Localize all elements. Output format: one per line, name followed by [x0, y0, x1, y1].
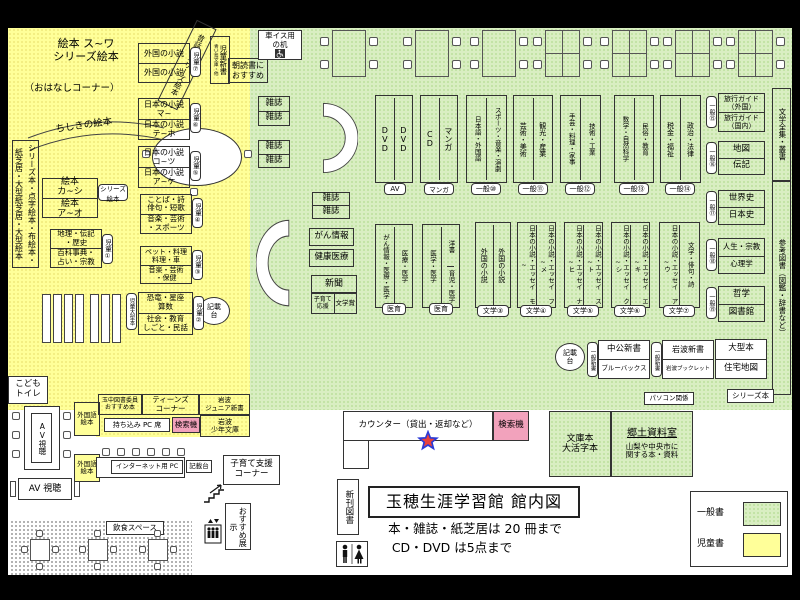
- label-series-books: シリーズ本: [727, 389, 774, 403]
- shelf-medical-2: 医学・医学 洋書 育児・医学: [422, 224, 460, 308]
- shelf-col: 民俗・教育: [634, 98, 654, 180]
- chair: [154, 530, 161, 537]
- tag-jido-ogata: 児童大型本: [126, 293, 137, 330]
- shelf-travel-guides: 旅行ガイド （外国） 旅行ガイド （国内）: [718, 93, 765, 132]
- shelf-japanese-novels-ko: 日本の小説 コ~ツ 日本の小説 ア~ケ: [138, 146, 190, 188]
- shelf-cell: 人生・宗教: [719, 239, 764, 256]
- shelf-general-11: 芸術・美術 観光・産業: [513, 95, 553, 183]
- shelf-children-shinsho: 青い鳥文庫・他 児童新書: [210, 36, 230, 84]
- bookshelf-bar: [53, 294, 62, 343]
- chair: [470, 60, 479, 69]
- legend-row-children: 児童書: [697, 533, 781, 557]
- tag-series-ehon: シリーズ 絵本: [98, 184, 128, 201]
- chair: [663, 60, 672, 69]
- shelf-medical-1: がん情報・医療・医学 医療・医学: [375, 224, 413, 308]
- shelf-cell: 文学賞: [334, 294, 357, 313]
- shelf-col: マンガ: [439, 98, 458, 180]
- search-terminal-teens[interactable]: 検索機: [172, 417, 200, 433]
- chair: [177, 448, 185, 456]
- shelf-japanese-novels-ma: 日本の小説 マ~ 日本の小説 テ~ホ: [138, 98, 190, 140]
- shelf-iwanami-shinsho: 岩波新書 岩波ブックレット: [662, 340, 714, 379]
- chair: [52, 546, 59, 553]
- shelf-col: 技術・工業: [580, 98, 600, 180]
- shelf-cell: 育児・医学: [447, 266, 454, 306]
- chair: [403, 37, 412, 46]
- curved-shelf-left: [256, 218, 294, 308]
- shelf-general-10: 日本語・外国語 スポーツ・音楽・演劇: [466, 95, 507, 183]
- tag-literature-5: 文学⑤: [567, 305, 599, 317]
- chair: [21, 546, 28, 553]
- shelf-col: 数学・自然科学: [615, 98, 634, 180]
- shelf-col: 税金・福祉: [661, 98, 680, 180]
- shelf-iwanami-junior: 岩波 ジュニア新書: [199, 394, 250, 415]
- chair: [36, 530, 43, 537]
- cafe-table: [148, 539, 168, 561]
- legend-children-label: 児童書: [697, 539, 724, 549]
- shelf-col: 手芸・料理・家事: [561, 98, 580, 180]
- label-picture-books-su-wa: 絵本 ス~ワ シリーズ絵本: [30, 32, 142, 70]
- shelf-cell: 旅行ガイド （外国）: [719, 94, 764, 112]
- wheelchair-icon: [275, 49, 285, 58]
- writing-stand-general: 記載 台: [555, 343, 585, 371]
- chair: [110, 546, 117, 553]
- shelf-general-12: 手芸・料理・家事 技術・工業: [560, 95, 601, 183]
- shelf-general-13: 数学・自然科学 民俗・教育: [614, 95, 654, 183]
- shelf-cell: 旅行ガイド （国内）: [719, 112, 764, 131]
- study-table: [612, 30, 647, 77]
- shelf-cell: 地図: [719, 142, 764, 158]
- tag-general-14: 一般⑭: [665, 183, 695, 195]
- map-title: 玉穂生涯学習館 館内図: [368, 486, 580, 518]
- shelf-cell: 図書館: [719, 304, 764, 322]
- tag-general-19: 一般⑲: [706, 287, 717, 319]
- shelf-cell: 日本の小説 コ~ツ: [139, 147, 189, 167]
- writing-stand-south: 記載台: [186, 460, 212, 473]
- chair: [63, 412, 71, 420]
- tag-manga: マンガ: [424, 183, 454, 195]
- tag-literature-3: 文学③: [477, 305, 509, 317]
- shelf-cell: 日本の小説 マ~: [139, 99, 189, 119]
- shelf-words-poetry-music: ことば・詩 俳句・短歌 音楽・芸術 ・スポーツ: [140, 194, 192, 234]
- tag-jido-1: 児童①: [102, 234, 113, 264]
- chair: [139, 546, 146, 553]
- chair: [94, 563, 101, 570]
- chair: [12, 431, 20, 439]
- shelf-cell: ペット・料理 料理・車: [141, 247, 191, 265]
- chair: [600, 37, 609, 46]
- bookshelf-bar: [64, 294, 73, 343]
- shelf-cell: 雑誌: [313, 193, 349, 205]
- tag-general-18: 一般⑱: [706, 239, 717, 271]
- shelf-cell: 日本の小説 ア~ケ: [139, 167, 189, 188]
- shelf-philosophy-library: 哲学 図書館: [718, 286, 765, 322]
- tag-literature-7: 文学⑦: [663, 305, 695, 317]
- tag-general-17: 一般⑰: [706, 191, 717, 223]
- shelf-cell: 岩波ブックレット: [663, 359, 713, 378]
- shelf-col: CD: [421, 98, 439, 180]
- shelf-col: 日本の小説・エッセイ ナ~ヒ: [565, 225, 583, 305]
- shelf-col: 日本の小説・エッセイ ス~ト: [583, 225, 602, 305]
- study-table: [332, 30, 366, 77]
- tag-literature-6: 文学⑥: [614, 305, 646, 317]
- library-floor-map: 絵本 ス~ワ シリーズ絵本 （おはなしコーナー） 昔話・シリーズ絵本 ちしきの絵…: [0, 0, 800, 600]
- shelf-col: 日本の小説・エッセイ ア~ウ: [660, 225, 679, 305]
- loan-rule-av: CD・DVD は5点まで: [352, 540, 552, 557]
- shelf-general-14: 税金・福祉 政治・法律: [660, 95, 701, 183]
- shelf-cell: 中公新書: [599, 341, 649, 359]
- shelf-geography-encyclopedia: 地理・伝記 ・歴史 百科事典・ 占い・宗教: [50, 229, 102, 268]
- shelf-foreign-novels-kids: 外国の小説 外国の小説: [138, 43, 190, 83]
- chair: [776, 37, 785, 46]
- chair: [12, 412, 20, 420]
- shelf-new-arrivals: 新刊図書: [337, 479, 359, 535]
- shelf-picture-books-ka-a: 絵本 カ~シ 絵本 ア~オ: [42, 178, 98, 218]
- tag-jido-4: 児童④: [192, 198, 203, 228]
- chair: [713, 37, 722, 46]
- shelf-chuko-bluebacks: 中公新書 ブルーバックス: [598, 340, 650, 379]
- shelf-literature-6: 日本の小説・エッセイ ク~シ 日本の小説・エッセイ エ~キ: [611, 222, 650, 308]
- study-table: [675, 30, 710, 77]
- bookshelf-bar: [75, 294, 84, 343]
- shelf-cancer-info: がん情報: [309, 228, 354, 246]
- shelf-literature-5: 日本の小説・エッセイ ナ~ヒ 日本の小説・エッセイ ス~ト: [564, 222, 603, 308]
- shelf-literature-3: 外国の小説 外国の小説: [475, 222, 511, 308]
- chair: [533, 37, 542, 46]
- shelf-series-braille-cloth-kamishibai: シリーズ本・点字絵本・布絵本・紙芝居・大型紙芝居・大型絵本: [12, 140, 39, 268]
- shelf-col: 芸術・美術: [514, 98, 533, 180]
- chair: [36, 563, 43, 570]
- shelf-cell: 雑誌: [313, 205, 349, 218]
- legend-children-swatch: [743, 533, 781, 557]
- chair: [79, 546, 86, 553]
- tag-jido-3: 児童③: [192, 250, 203, 280]
- chair: [369, 60, 378, 69]
- tag-general-15: 一般⑮: [706, 96, 717, 128]
- bookshelf-bar: [42, 294, 51, 343]
- label-jido-shinsho: 児童新書: [218, 45, 227, 75]
- shelf-cell: 雑誌: [259, 141, 289, 154]
- shelf-col: 日本語・外国語: [467, 98, 486, 180]
- shelf-cell: 音楽・芸術 ・保健: [141, 265, 191, 284]
- recommended-display: おすすめ展示: [225, 503, 251, 550]
- shelf-literature-7: 日本の小説・エッセイ ア~ウ 文学・俳句・詩: [659, 222, 700, 308]
- shelf-cell: 外国の小説: [139, 63, 189, 83]
- loan-rule-books: 本・雑誌・紙芝居は 20 冊まで: [360, 521, 590, 538]
- chair: [244, 150, 252, 158]
- shelf-cell: 日本史: [719, 207, 764, 224]
- chair: [533, 60, 542, 69]
- chair: [63, 431, 71, 439]
- chair: [600, 60, 609, 69]
- shelf-magazines-1: 雑誌雑誌: [258, 96, 290, 126]
- tag-general-13: 一般⑬: [619, 183, 649, 195]
- shelf-col: 日本の小説・エッセイ エ~キ: [630, 225, 649, 305]
- shelf-maps-biography: 地図 伝記: [718, 141, 765, 175]
- shelf-col: DVD: [376, 98, 394, 180]
- bookshelf-bar: [90, 294, 99, 343]
- shelf-col: DVD: [394, 98, 413, 180]
- children-toilet: こども トイレ: [8, 376, 48, 404]
- chair-bar: [74, 481, 80, 497]
- shelf-health-medical: 健康医療: [309, 249, 354, 267]
- study-table: [482, 30, 516, 77]
- shelf-magazines-2: 雑誌雑誌: [258, 140, 290, 168]
- cafe-table: [30, 539, 50, 561]
- shelf-col: 日本の小説・エッセイ モ~: [518, 225, 536, 305]
- chair-bar: [10, 481, 16, 497]
- shelf-cell: 世界史: [719, 191, 764, 207]
- av-viewing-booth: AV 視聴: [18, 478, 72, 500]
- shelf-cell: 日本の小説 テ~ホ: [139, 119, 189, 140]
- shelf-newspapers: 新聞: [311, 275, 357, 293]
- shelf-literature-4: 日本の小説・エッセイ モ~ 日本の小説・エッセイ フ~メ: [517, 222, 556, 308]
- label-computer-related: パソコン関係: [644, 392, 694, 405]
- label-story-corner: （おはなしコーナー）: [14, 82, 130, 96]
- chair: [519, 37, 528, 46]
- chair: [369, 37, 378, 46]
- bookshelf-bar: [112, 294, 121, 343]
- tag-medical-1: 医育: [382, 303, 406, 315]
- legend-row-general: 一般書: [697, 502, 781, 526]
- chair: [94, 530, 101, 537]
- shelf-cell: 恐竜・星座 算数: [139, 293, 192, 313]
- tag-general-12: 一般⑫: [565, 183, 595, 195]
- shelf-cell: 雑誌: [259, 111, 289, 126]
- tag-general-10: 一般⑩: [471, 183, 501, 195]
- shelf-cell: 大型本: [716, 340, 766, 359]
- tag-jido-2: 児童②: [193, 296, 204, 330]
- local-materials-title: 郷土資料室: [627, 428, 677, 440]
- shelf-parenting-literature: 子育て 応援 文学賞: [311, 293, 357, 314]
- wheelchair-desk-label: 車イス用 の机: [265, 32, 295, 49]
- counter-leg: [343, 440, 369, 469]
- shelf-bunko-large-print: 文庫本 大活字本: [549, 411, 611, 477]
- chair: [102, 448, 110, 456]
- shelf-col: 医学・医学: [423, 227, 441, 305]
- chair: [63, 450, 71, 458]
- shelf-pets-cooking-health: ペット・料理 料理・車 音楽・芸術 ・保健: [140, 246, 192, 284]
- shelf-cell: 子育て 応援: [312, 294, 334, 313]
- shelf-col: 文学・俳句・詩: [679, 225, 699, 305]
- shelf-reference-books: 参考図書（図鑑・辞書など）: [772, 181, 791, 395]
- tag-jido-7: 児童⑦: [190, 47, 201, 77]
- shelf-cell: 雑誌: [259, 154, 289, 168]
- chair: [12, 450, 20, 458]
- cafe-table: [88, 539, 108, 561]
- shelf-cell: ことば・詩 俳句・短歌: [141, 195, 191, 214]
- chair: [583, 60, 592, 69]
- chair: [162, 448, 170, 456]
- chair: [663, 37, 672, 46]
- curved-shelf-right: [318, 98, 358, 178]
- shelf-cell: 地理・伝記 ・歴史: [51, 230, 101, 248]
- elevator-icon: [204, 518, 222, 544]
- you-are-here-star-icon: [417, 430, 439, 452]
- chair: [776, 60, 785, 69]
- chair: [117, 448, 125, 456]
- chair: [713, 60, 722, 69]
- shelf-cell: ブルーバックス: [599, 359, 649, 378]
- shelf-col: 医療・医学: [394, 227, 413, 305]
- shelf-col: スポーツ・音楽・演劇: [486, 98, 506, 180]
- chair: [132, 448, 140, 456]
- chair: [170, 546, 177, 553]
- av-viewing-table-label: AV視聴: [31, 413, 52, 463]
- chair: [147, 448, 155, 456]
- parenting-support-corner: 子育て支援 コーナー: [223, 455, 280, 485]
- tag-general-shinsho-2: 一般新書: [651, 342, 662, 377]
- map-legend: 一般書 児童書: [690, 491, 788, 567]
- shelf-col: 観光・産業: [533, 98, 553, 180]
- chair: [726, 37, 735, 46]
- tag-medical-2: 医育: [429, 303, 453, 315]
- shelf-morning-reading-recommend: 朝読書に おすすめ: [228, 58, 268, 83]
- shelf-cell: 絵本 カ~シ: [43, 177, 97, 198]
- shelf-cell: 住宅地図: [716, 359, 766, 379]
- shelf-cell: 音楽・芸術 ・スポーツ: [141, 214, 191, 234]
- chair: [650, 60, 659, 69]
- shelf-committee-recommended: 玉中図書委員 おすすめ本: [98, 394, 142, 415]
- chair: [320, 37, 329, 46]
- shelf-history: 世界史 日本史: [718, 190, 765, 225]
- stairs-icon: [202, 482, 226, 504]
- chair: [470, 37, 479, 46]
- local-materials-room: 郷土資料室 山梨や中央市に 関する本・資料: [611, 411, 693, 477]
- local-materials-description: 山梨や中央市に 関する本・資料: [626, 443, 679, 460]
- bookshelf-bar: [101, 294, 110, 343]
- shelf-dinosaurs-society: 恐竜・星座 算数 社会・教育 しごと・民話: [138, 292, 193, 335]
- shelf-cd-manga: CD マンガ: [420, 95, 458, 183]
- shelf-av-dvd: DVD DVD: [375, 95, 413, 183]
- shelf-col: がん情報・医療・医学: [376, 227, 394, 305]
- shelf-col-split: 洋書 育児・医学: [441, 227, 460, 305]
- tag-general-shinsho-1: 一般新書: [587, 342, 598, 377]
- shelf-cell: 岩波新書: [663, 341, 713, 359]
- chair: [519, 60, 528, 69]
- teens-corner-label: ティーンズ コーナー: [142, 394, 199, 415]
- shelf-iwanami-shonen-bunko: 岩波 少年文庫: [200, 415, 250, 437]
- wheelchair-desk: 車イス用 の机: [258, 30, 302, 60]
- shelf-religion-psychology: 人生・宗教 心理学: [718, 238, 765, 274]
- tag-jido-5: 児童⑤: [190, 151, 201, 181]
- tag-literature-4: 文学④: [520, 305, 552, 317]
- study-table: [545, 30, 580, 77]
- shelf-cell: 社会・教育 しごと・民話: [139, 313, 192, 334]
- shelf-cell: 外国の小説: [139, 44, 189, 63]
- shelf-col: 日本の小説・エッセイ フ~メ: [536, 225, 555, 305]
- byo-pc-seat[interactable]: 持ち込み PC 席: [104, 418, 170, 432]
- study-table: [415, 30, 449, 77]
- shelf-cell: 洋書: [447, 227, 454, 266]
- shelf-large-books-housing-maps: 大型本 住宅地図: [715, 339, 767, 379]
- shelf-cell: 伝記: [719, 158, 764, 175]
- internet-pc-label: インターネット用 PC: [111, 460, 183, 474]
- chair: [583, 37, 592, 46]
- shelf-literary-collections: 文学全集・叢書: [772, 88, 791, 181]
- tag-general-11: 一般⑪: [518, 183, 548, 195]
- chair: [452, 37, 461, 46]
- tag-av: AV: [384, 183, 406, 195]
- shelf-magazines-3: 雑誌雑誌: [312, 192, 350, 219]
- study-table: [738, 30, 773, 77]
- chair: [320, 60, 329, 69]
- shelf-cell: 百科事典・ 占い・宗教: [51, 248, 101, 267]
- chair: [650, 37, 659, 46]
- chair: [452, 60, 461, 69]
- chair: [154, 563, 161, 570]
- shelf-col: 外国の小説: [476, 225, 493, 305]
- shelf-cell: 絵本 ア~オ: [43, 198, 97, 220]
- shelf-cell: 雑誌: [259, 97, 289, 111]
- shelf-foreign-language-picture-books-1: 外国語 絵本: [74, 402, 100, 436]
- search-terminal-counter[interactable]: 検索機: [493, 411, 529, 441]
- shelf-col: 外国の小説: [493, 225, 511, 305]
- shelf-col: 日本の小説・エッセイ ク~シ: [612, 225, 630, 305]
- legend-general-label: 一般書: [697, 508, 724, 518]
- chair: [726, 60, 735, 69]
- chair: [403, 60, 412, 69]
- tag-general-16: 一般⑯: [706, 142, 717, 174]
- legend-general-swatch: [743, 502, 781, 526]
- shelf-col: 政治・法律: [680, 98, 700, 180]
- tag-jido-6: 児童⑥: [190, 103, 201, 133]
- shelf-cell: 心理学: [719, 256, 764, 274]
- shelf-cell: 哲学: [719, 287, 764, 304]
